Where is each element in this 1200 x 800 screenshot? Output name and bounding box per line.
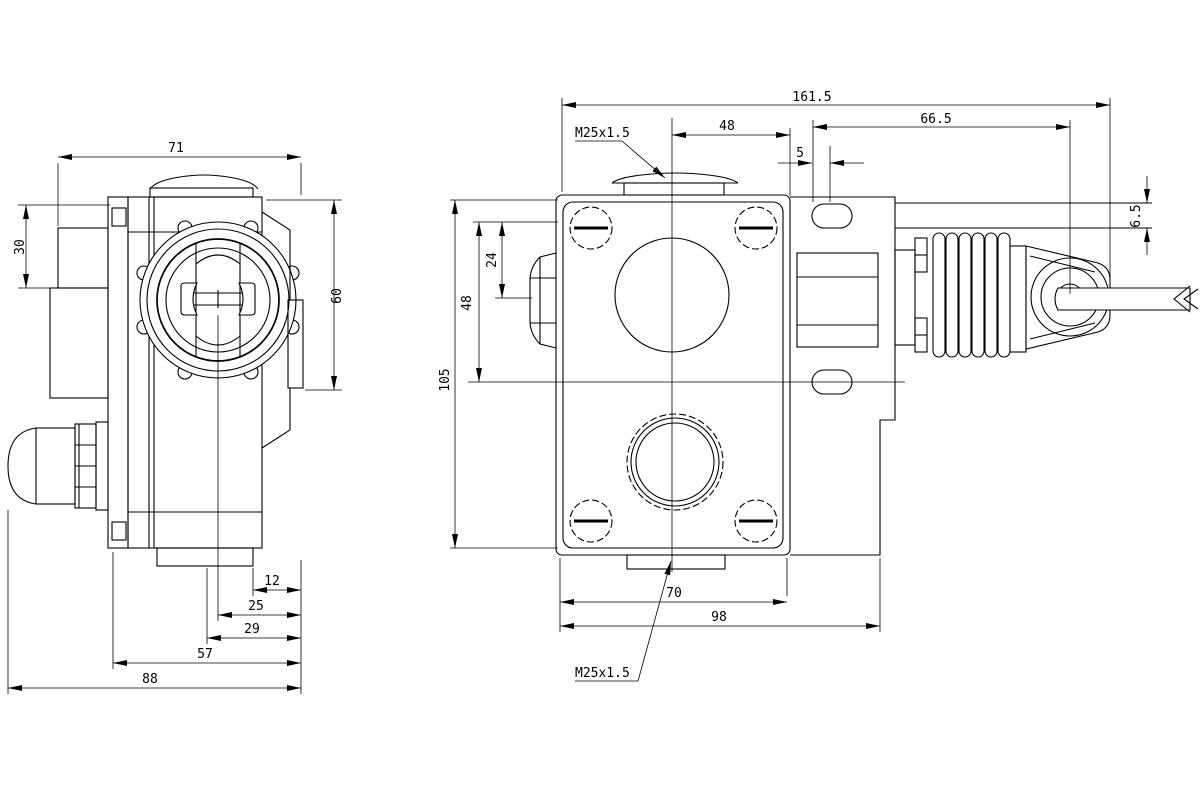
dim-161-5: 161.5 bbox=[792, 90, 831, 105]
housing-lid bbox=[563, 202, 783, 548]
dim-48-top: 48 bbox=[719, 119, 735, 134]
mounting-slot-top bbox=[812, 204, 852, 228]
dim-5: 5 bbox=[796, 146, 804, 161]
dim-29: 29 bbox=[244, 622, 260, 637]
thread-label-bottom: M25x1.5 bbox=[575, 666, 630, 681]
thread-label-top: M25x1.5 bbox=[575, 126, 630, 141]
top-cap-dome-front bbox=[612, 173, 738, 183]
dim-60: 60 bbox=[330, 288, 345, 304]
dim-57: 57 bbox=[197, 647, 213, 662]
right-view-dimensions: 161.5 48 66.5 5 6.5 105 48 24 70 98 M25x… bbox=[438, 90, 1147, 681]
top-cap-dome bbox=[150, 175, 258, 189]
dim-30: 30 bbox=[13, 239, 28, 255]
gland-nose bbox=[8, 428, 36, 504]
left-view-dimensions: 71 30 60 12 25 29 57 88 bbox=[8, 141, 345, 694]
right-view bbox=[530, 173, 1198, 569]
mounting-bracket bbox=[790, 197, 895, 555]
dim-66-5: 66.5 bbox=[920, 112, 951, 127]
dim-70: 70 bbox=[666, 586, 682, 601]
dim-12: 12 bbox=[264, 574, 280, 589]
dim-71: 71 bbox=[168, 141, 184, 156]
drawing-canvas: 71 30 60 12 25 29 57 88 bbox=[0, 0, 1200, 800]
dim-105: 105 bbox=[438, 368, 453, 391]
technical-drawing: 71 30 60 12 25 29 57 88 bbox=[0, 0, 1200, 800]
dim-24: 24 bbox=[485, 252, 500, 268]
terminal-box-upper bbox=[58, 228, 108, 288]
hex-nut bbox=[530, 253, 556, 348]
dim-25: 25 bbox=[248, 599, 264, 614]
terminal-box-lower bbox=[50, 288, 108, 398]
left-view bbox=[8, 175, 303, 572]
actuating-rod bbox=[1055, 286, 1198, 312]
back-plate bbox=[108, 197, 128, 548]
dim-88: 88 bbox=[142, 672, 158, 687]
cable-gland bbox=[8, 422, 108, 510]
dim-6-5: 6.5 bbox=[1129, 204, 1144, 227]
bottom-gland-tab bbox=[627, 555, 725, 569]
dim-98: 98 bbox=[711, 610, 727, 625]
cover-screws bbox=[570, 207, 777, 542]
bellows bbox=[933, 233, 1026, 357]
bottom-tab bbox=[157, 548, 253, 566]
dim-48-left: 48 bbox=[460, 295, 475, 311]
lever-head bbox=[1026, 246, 1198, 349]
conduit-opening bbox=[627, 414, 723, 510]
clip-top bbox=[112, 208, 126, 226]
clip-bottom bbox=[112, 522, 126, 540]
roller-head bbox=[137, 221, 299, 572]
